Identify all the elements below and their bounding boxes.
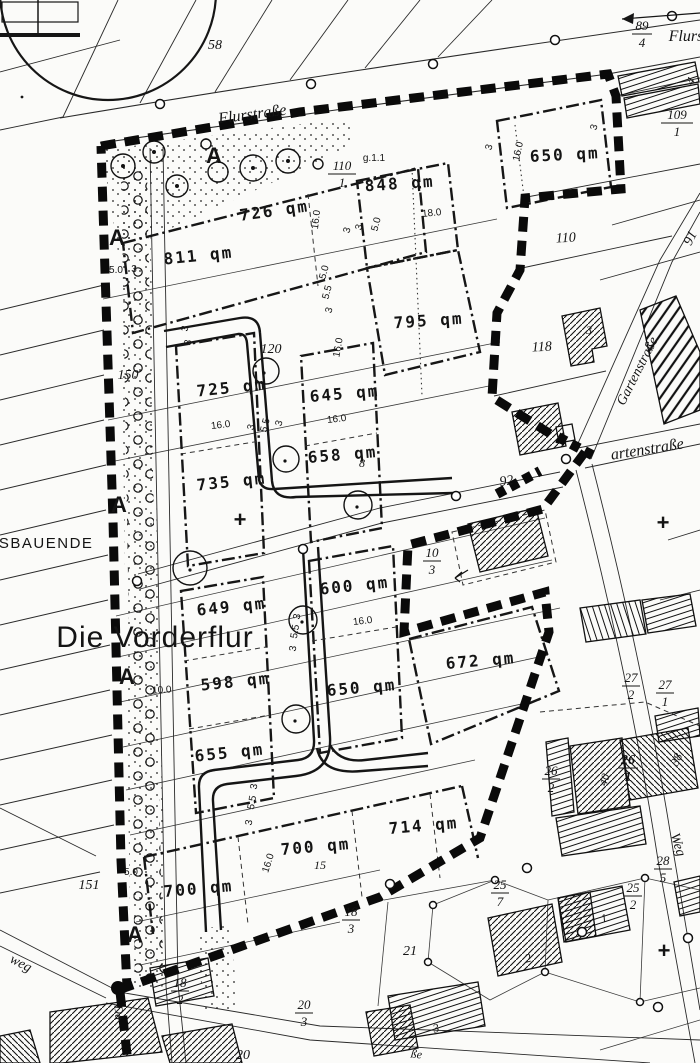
svg-text:110: 110	[333, 158, 352, 173]
parcel-fraction: 103	[423, 545, 441, 577]
parcel-number: 110	[555, 230, 576, 246]
parcel-fraction: 894	[632, 18, 652, 50]
plot-number: 15	[314, 858, 326, 872]
svg-text:27: 27	[625, 670, 639, 685]
svg-text:3: 3	[300, 1014, 308, 1029]
svg-text:3: 3	[342, 226, 354, 235]
area-label: 672 qm	[445, 648, 516, 673]
building	[580, 600, 646, 642]
area-label: 650 qm	[529, 143, 600, 166]
area-label: 658 qm	[307, 442, 378, 467]
svg-text:5.0: 5.0	[369, 216, 383, 233]
building	[162, 1024, 242, 1063]
building	[50, 998, 162, 1063]
svg-text:5.0: 5.0	[124, 867, 138, 878]
svg-text:18: 18	[174, 975, 188, 990]
svg-text:5.5: 5.5	[320, 284, 334, 301]
house-number: 3	[585, 323, 592, 337]
building	[558, 892, 596, 942]
parcel-fraction: 257	[491, 877, 509, 909]
building	[366, 1005, 418, 1056]
parcel-fraction: 252	[624, 880, 642, 912]
svg-text:26: 26	[545, 763, 559, 778]
svg-text:2: 2	[548, 780, 555, 795]
cross-mark: +	[234, 507, 247, 532]
cadastral-plan-scan: 650 qm 726 qm 848 qm 811 qm 795 qm 725 q…	[0, 0, 700, 1063]
svg-text:3: 3	[292, 612, 304, 620]
svg-text:3: 3	[288, 644, 300, 652]
svg-text:3: 3	[183, 338, 195, 346]
svg-text:16.0: 16.0	[210, 419, 231, 432]
svg-text:25: 25	[627, 880, 641, 895]
svg-text:26: 26	[620, 753, 635, 768]
svg-text:7: 7	[497, 894, 504, 909]
area-label: 598 qm	[200, 668, 271, 694]
area-label: 735 qm	[196, 468, 267, 494]
svg-text:10: 10	[426, 545, 440, 560]
svg-text:4: 4	[639, 35, 646, 50]
zone-mark-a: A	[109, 225, 125, 250]
svg-text:27: 27	[659, 677, 673, 692]
parcel-number: 20	[236, 1048, 250, 1063]
cross-mark: +	[657, 510, 670, 535]
dimension-labels: 16.0 18.0 3 3 5.0 5.0 5.5 3 16.0 3 3 5.0…	[109, 123, 601, 878]
area-label: 700 qm	[163, 876, 234, 901]
cross-mark: +	[658, 938, 671, 963]
svg-text:2: 2	[630, 897, 637, 912]
area-label: 649 qm	[196, 593, 267, 619]
area-label: 645 qm	[309, 381, 380, 406]
ausbauende-label: USBAUENDE	[0, 535, 93, 552]
svg-text:1: 1	[674, 124, 681, 139]
svg-text:1: 1	[625, 770, 632, 785]
street-label-weg-sw: weg	[7, 952, 34, 976]
area-label: 726 qm	[238, 196, 310, 225]
svg-text:16.0: 16.0	[260, 852, 277, 874]
north-reference-arrow	[622, 13, 700, 24]
parcel-number: 118	[531, 339, 552, 355]
svg-text:2: 2	[177, 992, 184, 1007]
svg-text:3: 3	[354, 223, 366, 232]
svg-text:5.0: 5.0	[109, 265, 123, 276]
svg-text:3: 3	[274, 419, 286, 428]
svg-text:5: 5	[660, 870, 667, 885]
parcel-number: 151	[79, 878, 100, 893]
area-label: 848 qm	[364, 172, 435, 196]
street-label-flurstrasse-fragment: Flurs	[668, 28, 700, 45]
svg-text:89: 89	[636, 18, 650, 33]
building	[642, 594, 696, 633]
parcel-number: 120	[261, 342, 282, 357]
svg-text:3: 3	[249, 782, 261, 790]
svg-text:2: 2	[628, 687, 635, 702]
area-label: 650 qm	[326, 675, 397, 700]
svg-text:3: 3	[246, 423, 258, 432]
svg-text:5.5: 5.5	[258, 417, 272, 434]
parcel-fraction: 183	[342, 904, 360, 936]
svg-text:3: 3	[244, 818, 256, 826]
svg-text:3: 3	[347, 921, 355, 936]
building	[488, 904, 562, 976]
plot-number: 8	[359, 456, 365, 470]
area-label: 795 qm	[393, 309, 464, 333]
svg-text:3: 3	[428, 562, 436, 577]
svg-text:16.0: 16.0	[310, 209, 323, 230]
svg-text:109: 109	[667, 107, 687, 122]
svg-text:16.0: 16.0	[331, 337, 345, 359]
area-label: 700 qm	[280, 834, 351, 859]
svg-text:10.0: 10.0	[152, 684, 173, 696]
svg-text:3: 3	[484, 143, 496, 152]
parcel-number: 21	[403, 944, 417, 959]
street-label-fragment: ße	[409, 1046, 423, 1061]
svg-text:18.0: 18.0	[421, 207, 442, 220]
parcel-number: 58	[208, 38, 222, 53]
area-label: 811 qm	[163, 242, 234, 268]
building	[556, 806, 646, 856]
parcel-number: 150	[118, 368, 139, 383]
parcel-fraction: 272	[622, 670, 640, 702]
cadastral-map: 650 qm 726 qm 848 qm 811 qm 795 qm 725 q…	[0, 0, 700, 1063]
building	[562, 308, 607, 366]
svg-text:5.5: 5.5	[246, 794, 259, 810]
svg-text:18: 18	[345, 904, 359, 919]
building	[0, 1030, 40, 1063]
utility-label: g.1.1	[363, 153, 386, 164]
svg-text:28: 28	[657, 853, 671, 868]
svg-text:1: 1	[662, 694, 669, 709]
parcel-number: 92	[499, 473, 515, 490]
svg-text:20: 20	[298, 997, 312, 1012]
building	[674, 876, 700, 916]
zone-mark-a: A	[111, 492, 127, 517]
parcel-fraction: 271	[656, 677, 674, 709]
area-label: 714 qm	[388, 813, 459, 838]
svg-text:1: 1	[339, 175, 346, 190]
parcel-fraction: 1091	[661, 107, 693, 139]
parcel-number: 91	[681, 229, 700, 248]
area-label: 600 qm	[319, 572, 390, 598]
svg-text:3: 3	[131, 264, 137, 275]
svg-text:16.0: 16.0	[352, 615, 373, 628]
svg-text:5.5: 5.5	[289, 623, 302, 639]
street-label-fragment: Da	[111, 1004, 126, 1021]
zone-mark-a: A	[206, 143, 222, 168]
street-label-weg: Weg	[667, 831, 689, 858]
svg-text:25: 25	[494, 877, 508, 892]
svg-text:16.0: 16.0	[326, 413, 347, 426]
svg-text:3: 3	[589, 123, 601, 132]
field-name-title: Die Vorderflur	[56, 621, 253, 654]
svg-text:16.0: 16.0	[511, 140, 526, 162]
svg-text:3: 3	[324, 306, 336, 315]
map-frame-corner	[0, 0, 216, 100]
zone-mark-a: A	[119, 664, 135, 689]
zone-mark-a: A	[127, 922, 143, 947]
